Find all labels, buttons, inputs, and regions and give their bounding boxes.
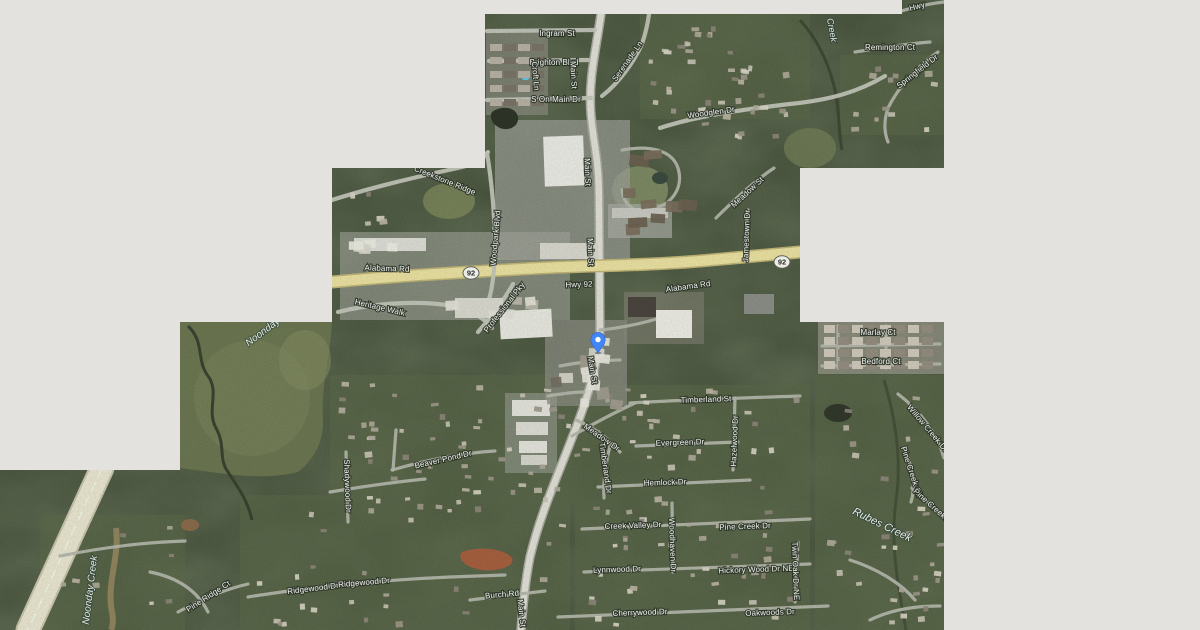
pin-dot xyxy=(595,337,600,342)
map-viewport[interactable]: Ingram StBrighton BlvdCroft LnMain StS O… xyxy=(0,0,1200,630)
satellite-map-canvas[interactable]: Ingram StBrighton BlvdCroft LnMain StS O… xyxy=(0,0,1200,630)
